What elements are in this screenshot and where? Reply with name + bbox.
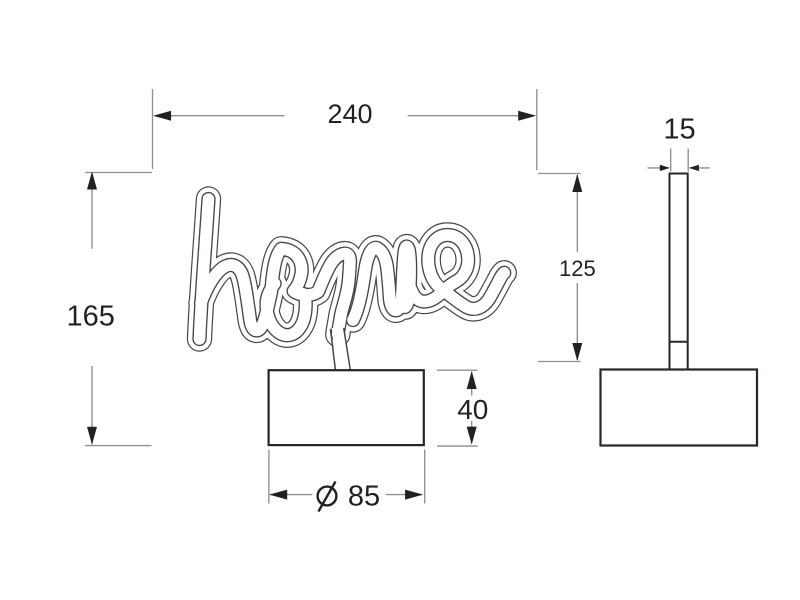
svg-text:85: 85 [348,481,380,513]
svg-text:165: 165 [67,301,115,333]
svg-text:15: 15 [663,113,695,145]
svg-text:240: 240 [327,99,372,129]
svg-text:125: 125 [559,256,596,281]
svg-text:40: 40 [457,394,488,425]
